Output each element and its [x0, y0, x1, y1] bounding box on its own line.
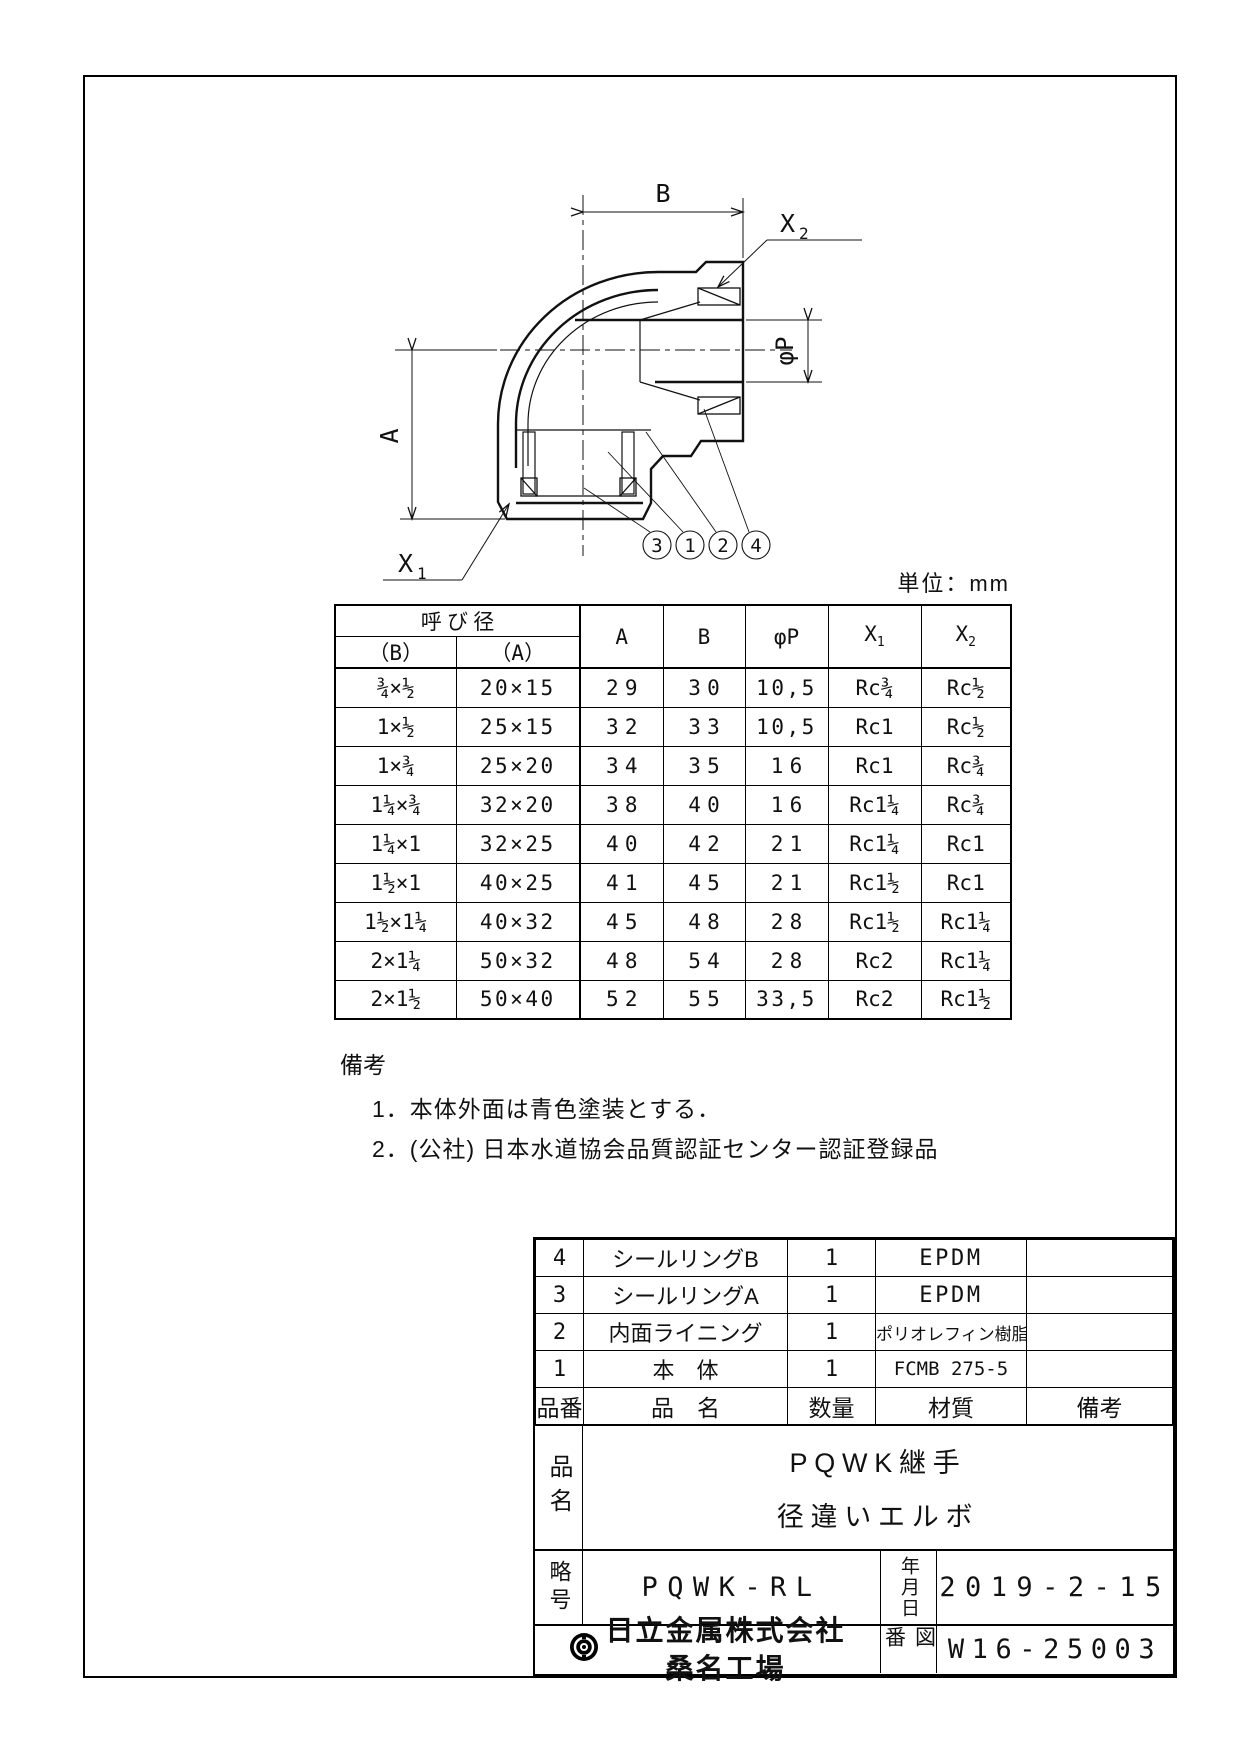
parts-row: 1本 体 1FCMB 275-5	[536, 1351, 1173, 1388]
col-header-nominal-a: （A）	[456, 637, 580, 669]
label-x2: X	[780, 209, 795, 238]
balloon-leaders	[584, 409, 749, 532]
factory-name: 桑名工場	[605, 1650, 845, 1688]
balloon-1-number: 1	[684, 535, 695, 557]
table-row: 1¼×¾32×20 3840 16Rc1¼Rc¾	[335, 785, 1011, 824]
col-header-nominal-b: （B）	[335, 637, 456, 669]
label-x2-sub: 2	[799, 224, 809, 243]
table-row: 1×½25×15 3233 10,5Rc1Rc½	[335, 707, 1011, 746]
seal-ring-b	[698, 288, 740, 414]
parts-list-table: 4シールリングB 1EPDM 3シールリングA 1EPDM 2内面ライニング 1…	[535, 1239, 1173, 1425]
drawing-date: 2019-2-15	[936, 1551, 1173, 1624]
date-label: 年月日	[880, 1551, 936, 1624]
table-row: ¾×½20×15 2930 10,5Rc¾Rc½	[335, 668, 1011, 707]
product-name-line2: 径違いエルボ	[777, 1495, 980, 1534]
unit-note: 単位：mm	[800, 566, 1010, 598]
leader-x2	[718, 240, 862, 287]
code-label: 略号	[535, 1551, 583, 1624]
col-header-nominal-diameter: 呼び径	[335, 605, 580, 637]
balloon-3-number: 3	[651, 535, 662, 557]
drawing-number-label: 図番	[880, 1626, 936, 1673]
dim-label-phi-p: φP	[771, 337, 799, 366]
note-item-1: 1．本体外面は青色塗装とする．	[372, 1090, 721, 1124]
label-x1-sub: 1	[417, 564, 427, 583]
col-header-phi-p: φP	[745, 605, 828, 668]
dim-label-b: B	[655, 179, 670, 208]
table-row: 2×1¼50×32 4854 28Rc2Rc1¼	[335, 941, 1011, 980]
title-block: 4シールリングB 1EPDM 3シールリングA 1EPDM 2内面ライニング 1…	[533, 1237, 1175, 1676]
parts-header-row: 品番品 名 数量材質 備考	[536, 1388, 1173, 1425]
product-name-label: 品名	[535, 1426, 583, 1549]
balloon-4-number: 4	[750, 535, 761, 557]
elbow-section-drawing: B A φP X 2 X 1	[0, 0, 1240, 600]
parts-row: 3シールリングA 1EPDM	[536, 1277, 1173, 1314]
dim-label-a: A	[375, 428, 404, 443]
col-header-b: B	[663, 605, 745, 668]
table-row: 1½×1¼40×32 4548 28Rc1½Rc1¼	[335, 902, 1011, 941]
hitachi-metals-logo	[569, 1632, 599, 1667]
parts-row: 2内面ライニング 1ポリオレフィン樹脂	[536, 1314, 1173, 1351]
table-row: 1¼×132×25 4042 21Rc1¼Rc1	[335, 824, 1011, 863]
drawing-sheet: B A φP X 2 X 1	[0, 0, 1240, 1755]
inner-lining	[516, 302, 700, 496]
balloon-2-number: 2	[717, 535, 728, 557]
notes-title: 備考	[340, 1046, 386, 1080]
dimension-table: 呼び径 A B φP X1 X2 （B） （A） ¾×½20×15 2930 1…	[334, 604, 1012, 1020]
dimension-a	[400, 350, 505, 519]
col-header-x2: X2	[921, 605, 1011, 668]
table-row: 1½×140×25 4145 21Rc1½Rc1	[335, 863, 1011, 902]
drawing-number: W16-25003	[936, 1626, 1173, 1673]
col-header-a: A	[580, 605, 663, 668]
parts-row: 4シールリングB 1EPDM	[536, 1240, 1173, 1277]
label-x1: X	[398, 549, 413, 578]
note-item-2: 2．(公社) 日本水道協会品質認証センター認証登録品	[372, 1130, 939, 1164]
table-row: 2×1½50×40 5255 33,5Rc2Rc1½	[335, 980, 1011, 1019]
product-name-line1: PQWK継手	[789, 1441, 966, 1480]
col-header-x1: X1	[828, 605, 921, 668]
table-row: 1×¾25×20 3435 16Rc1Rc¾	[335, 746, 1011, 785]
company-name: 日立金属株式会社	[605, 1612, 845, 1650]
seal-ring-a	[521, 478, 636, 496]
